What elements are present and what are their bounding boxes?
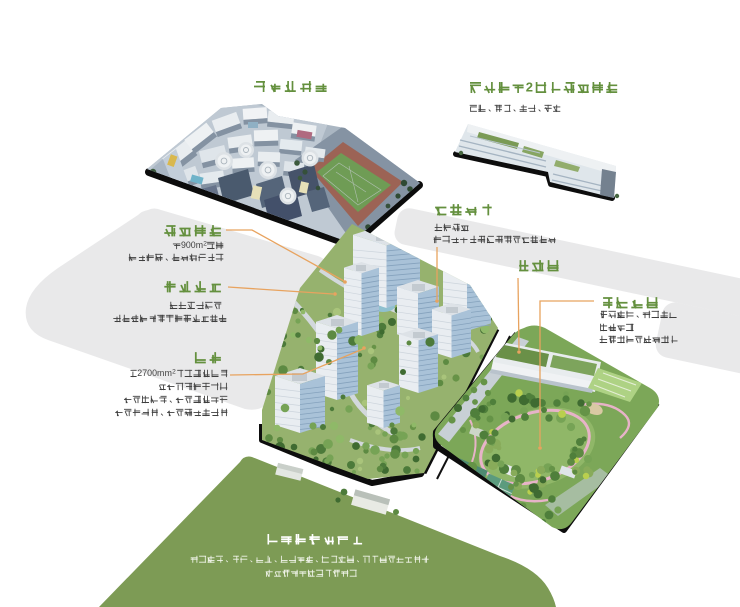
svg-text:2: 2: [526, 80, 533, 95]
svg-text:2: 2: [203, 240, 207, 247]
svg-text:2: 2: [172, 368, 176, 375]
svg-text:m: m: [157, 368, 164, 378]
svg-text:m: m: [196, 240, 203, 250]
svg-text:m: m: [165, 368, 172, 378]
